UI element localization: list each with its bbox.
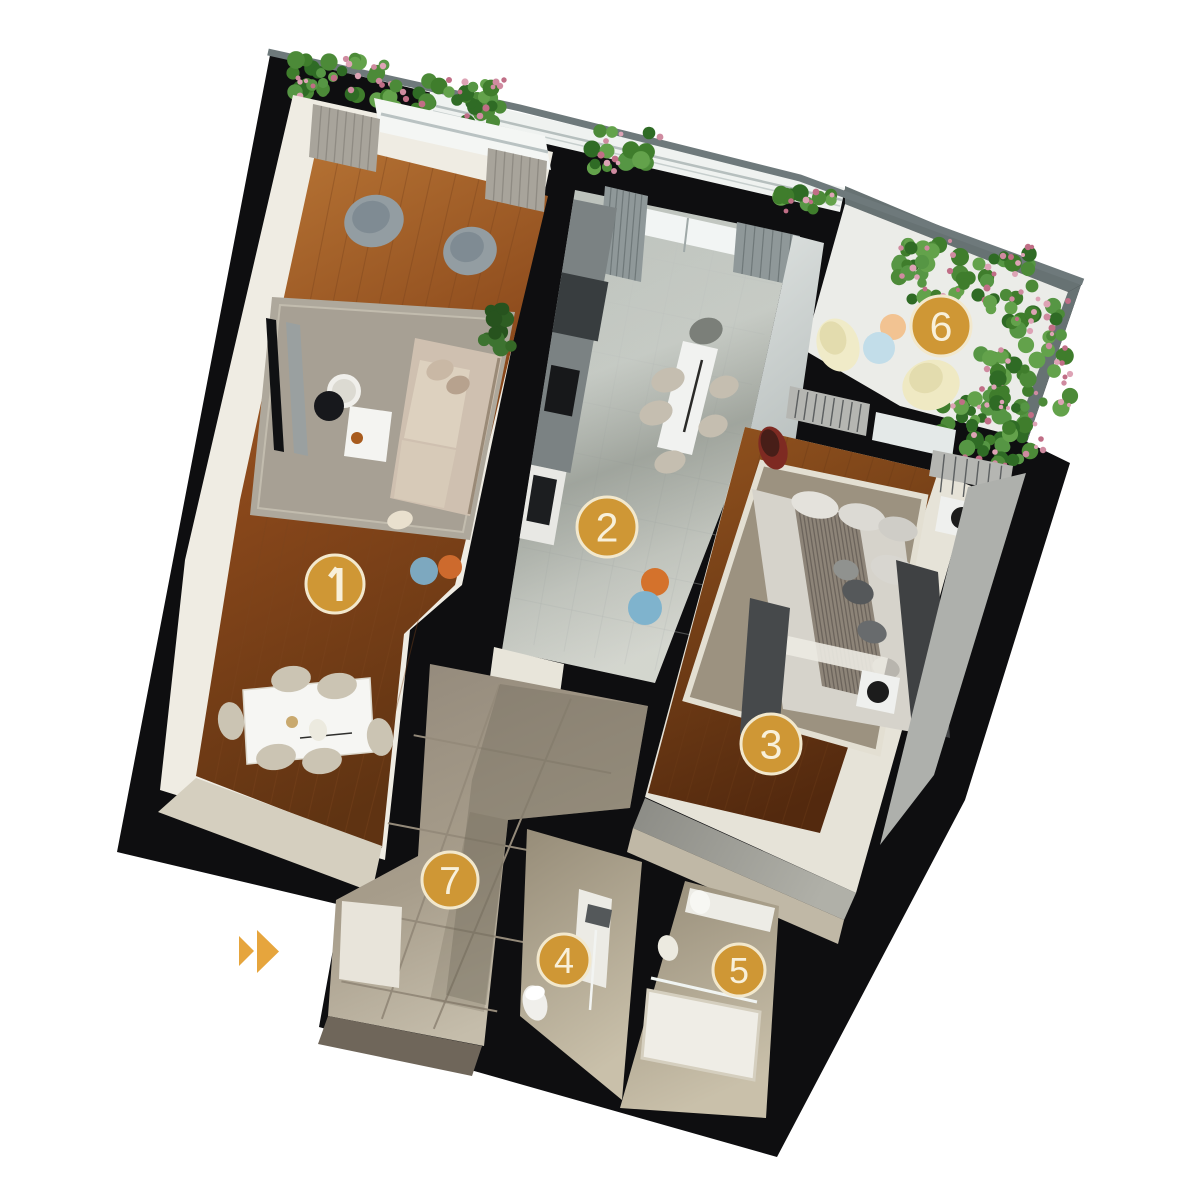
svg-text:4: 4	[554, 940, 574, 981]
svg-text:6: 6	[930, 304, 953, 350]
svg-text:2: 2	[596, 505, 619, 551]
svg-text:3: 3	[760, 722, 783, 768]
svg-text:5: 5	[729, 950, 749, 991]
svg-text:7: 7	[439, 860, 461, 903]
